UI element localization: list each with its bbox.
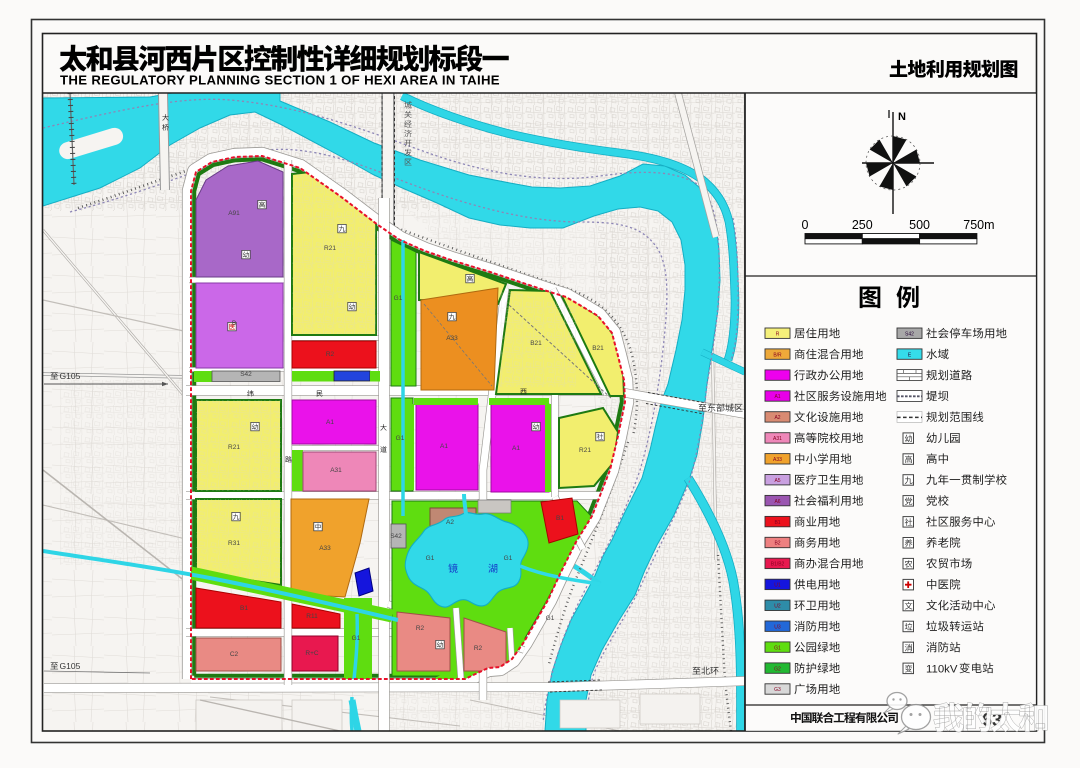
svg-text:R21: R21 [228, 444, 240, 451]
svg-text:S42: S42 [240, 371, 252, 378]
svg-text:U3: U3 [774, 624, 781, 630]
svg-text:G3: G3 [774, 687, 781, 693]
svg-text:B1: B1 [774, 520, 780, 526]
svg-text:S42: S42 [905, 331, 914, 337]
svg-text:G1: G1 [504, 555, 513, 562]
svg-text:G1: G1 [352, 635, 361, 642]
svg-text:A2: A2 [446, 519, 454, 526]
svg-text:G105: G105 [60, 661, 81, 671]
svg-text:A31: A31 [330, 467, 342, 474]
svg-text:R2: R2 [474, 645, 483, 652]
svg-text:A31: A31 [773, 436, 782, 442]
svg-text:R21: R21 [324, 245, 336, 252]
svg-text:U1: U1 [774, 583, 781, 589]
svg-text:R2: R2 [326, 351, 335, 358]
svg-text:A5: A5 [774, 478, 780, 484]
svg-text:C2: C2 [230, 651, 239, 658]
svg-text:A33: A33 [773, 457, 782, 463]
svg-text:A1: A1 [774, 394, 780, 400]
svg-text:G1: G1 [394, 295, 403, 302]
svg-text:B21: B21 [530, 340, 542, 347]
svg-text:A91: A91 [228, 210, 240, 217]
svg-text:R+C: R+C [305, 650, 318, 657]
svg-text:A33: A33 [319, 545, 331, 552]
svg-text:R11: R11 [306, 613, 318, 620]
svg-text:R31: R31 [228, 540, 240, 547]
svg-text:B1/B2: B1/B2 [771, 562, 785, 568]
svg-text:250: 250 [852, 218, 873, 232]
svg-text:S42: S42 [390, 533, 402, 540]
svg-text:G1: G1 [774, 645, 781, 651]
svg-text:B: B [232, 320, 236, 327]
svg-text:R: R [776, 331, 780, 337]
svg-text:A33: A33 [446, 335, 458, 342]
svg-text:G1: G1 [396, 435, 405, 442]
svg-text:A1: A1 [440, 443, 448, 450]
svg-text:A2: A2 [774, 415, 780, 421]
svg-text:N: N [898, 111, 906, 123]
svg-text:G2: G2 [774, 666, 781, 672]
svg-text:B1: B1 [240, 605, 248, 612]
svg-text:B1: B1 [556, 515, 564, 522]
svg-text:R2: R2 [416, 625, 425, 632]
svg-text:B/R: B/R [773, 352, 782, 358]
svg-text:U2: U2 [774, 604, 781, 610]
svg-text:500: 500 [909, 218, 930, 232]
svg-text:0: 0 [802, 218, 809, 232]
svg-text:A1: A1 [512, 445, 520, 452]
svg-text:750m: 750m [963, 218, 994, 232]
svg-text:B2: B2 [774, 541, 780, 547]
svg-text:G1: G1 [546, 615, 555, 622]
svg-text:B21: B21 [592, 345, 604, 352]
svg-text:R21: R21 [579, 447, 591, 454]
svg-text:110kV: 110kV [926, 663, 958, 675]
svg-text:A1: A1 [326, 419, 334, 426]
svg-text:A6: A6 [774, 499, 780, 505]
svg-text:G1: G1 [426, 555, 435, 562]
svg-text:THE REGULATORY PLANNING SECTIO: THE REGULATORY PLANNING SECTION 1 OF HEX… [60, 73, 500, 88]
svg-text:G105: G105 [60, 371, 81, 381]
